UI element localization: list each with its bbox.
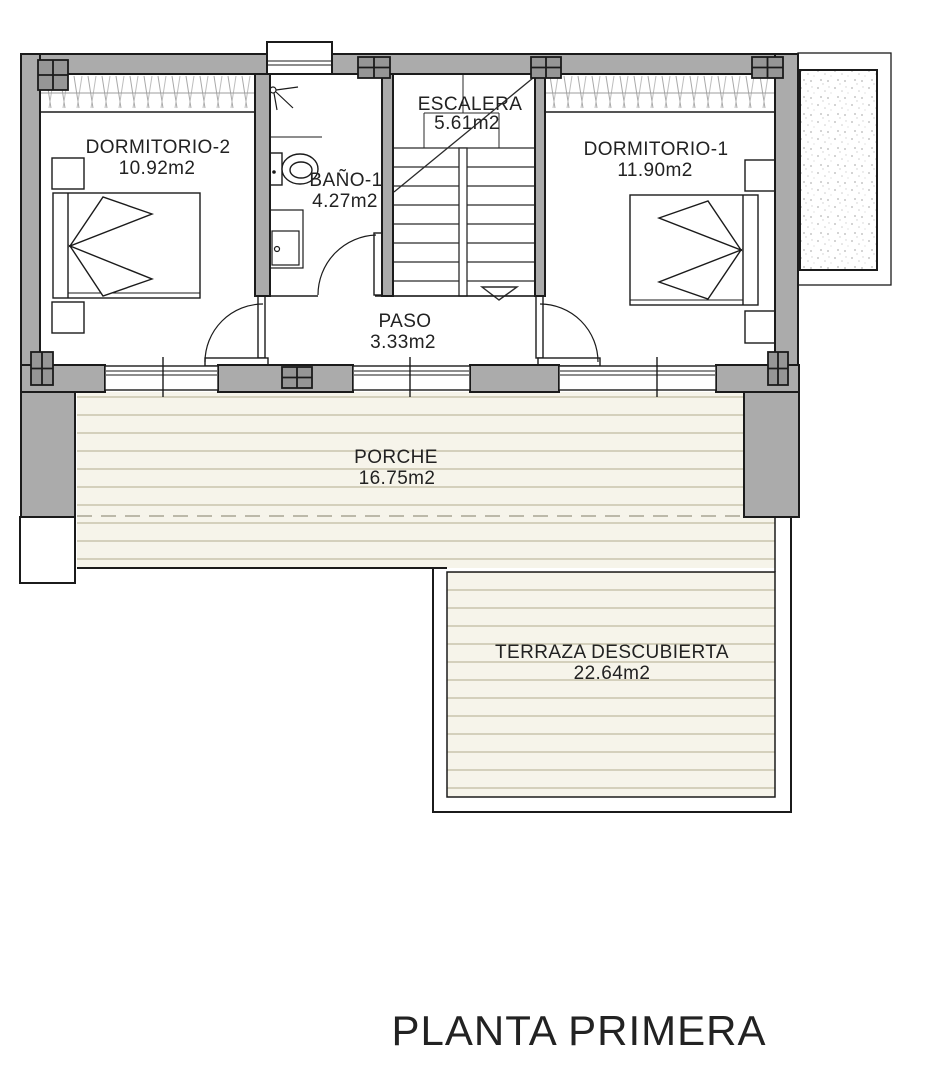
wall-porch-left (21, 392, 75, 517)
room-area-terraza: 22.64m2 (574, 663, 651, 684)
room-area-dormitorio-1: 11.90m2 (617, 160, 692, 181)
room-label-dormitorio-2: DORMITORIO-2 (86, 137, 231, 158)
room-label-porche: PORCHE (354, 447, 438, 468)
nightstand (52, 158, 84, 189)
floor-plan-page: DORMITORIO-2 10.92m2 BAÑO-1 4.27m2 ESCAL… (0, 0, 929, 1080)
room-label-escalera: ESCALERA (418, 94, 523, 115)
side-patio-stipple (800, 70, 877, 270)
room-area-porche: 16.75m2 (359, 468, 436, 489)
porch-side-parapet (20, 517, 75, 583)
wall-dormitorio2-bano (255, 74, 270, 296)
room-label-paso: PASO (379, 311, 432, 332)
column-icon (752, 57, 783, 78)
column-icon (31, 352, 53, 385)
nightstand (745, 160, 776, 191)
nightstand (52, 302, 84, 333)
wall-escalera-dormitorio1 (535, 74, 545, 296)
column-icon (768, 352, 788, 385)
wall-top (21, 54, 795, 74)
stair-center-divider (459, 148, 467, 296)
floor-plan-canvas: DORMITORIO-2 10.92m2 BAÑO-1 4.27m2 ESCAL… (0, 0, 929, 1080)
nightstand (745, 311, 776, 343)
wall-bottom-segment (470, 365, 559, 392)
wall-left (21, 54, 40, 392)
wall-corner-bottom-right (744, 392, 799, 517)
plan-title: PLANTA PRIMERA (392, 1007, 767, 1054)
room-label-dormitorio-1: DORMITORIO-1 (584, 139, 729, 160)
wall-right (775, 54, 798, 392)
room-area-paso: 3.33m2 (370, 332, 436, 353)
room-label-terraza: TERRAZA DESCUBIERTA (495, 642, 729, 663)
side-patio-area (798, 53, 891, 285)
room-area-dormitorio-2: 10.92m2 (119, 158, 196, 179)
column-icon (531, 57, 561, 78)
wall-bano-escalera (382, 74, 393, 296)
column-icon (282, 367, 312, 388)
column-icon (358, 57, 390, 78)
porch-decking-strip (744, 516, 775, 568)
window-bano-top (267, 42, 332, 74)
terrace-decking (447, 572, 775, 797)
room-label-bano-1: BAÑO-1 (309, 169, 382, 191)
room-area-bano-1: 4.27m2 (312, 191, 378, 212)
room-area-escalera: 5.61m2 (434, 113, 500, 134)
column-icon (38, 60, 68, 90)
